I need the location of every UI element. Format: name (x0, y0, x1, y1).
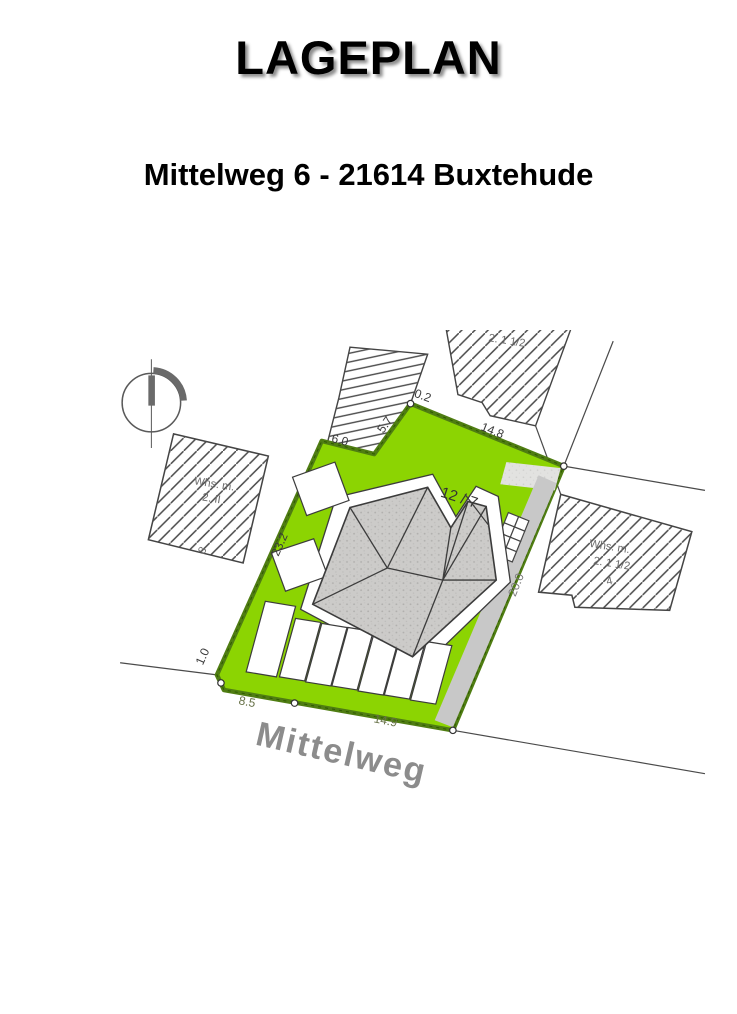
dim-top-step: 0.2 (413, 386, 434, 405)
street-edge-line-east (453, 730, 705, 773)
plot-line-east (564, 466, 705, 490)
dim-bottom-step: 1.0 (193, 646, 213, 667)
street-name: Mittelweg (252, 715, 430, 791)
plot-line-northeast (564, 341, 613, 466)
page-title: LAGEPLAN (0, 0, 737, 85)
lageplan-page: LAGEPLAN Mittelweg 6 - 21614 Buxtehude (0, 0, 737, 1014)
dim-bottom-left: 8.5 (238, 693, 257, 710)
site-plan: Whs. m. 2. II 8 2. 1 1/2 Whs. m. 2. 1 1/ (105, 330, 710, 810)
building-east: Whs. m. 2. 1 1/2 4 (539, 494, 692, 610)
page-subtitle: Mittelweg 6 - 21614 Buxtehude (0, 85, 737, 193)
building-northeast: 2. 1 1/2 (446, 330, 571, 426)
site-plan-drawing: Whs. m. 2. II 8 2. 1 1/2 Whs. m. 2. 1 1/ (105, 330, 710, 810)
building-west: Whs. m. 2. II 8 (148, 434, 268, 563)
